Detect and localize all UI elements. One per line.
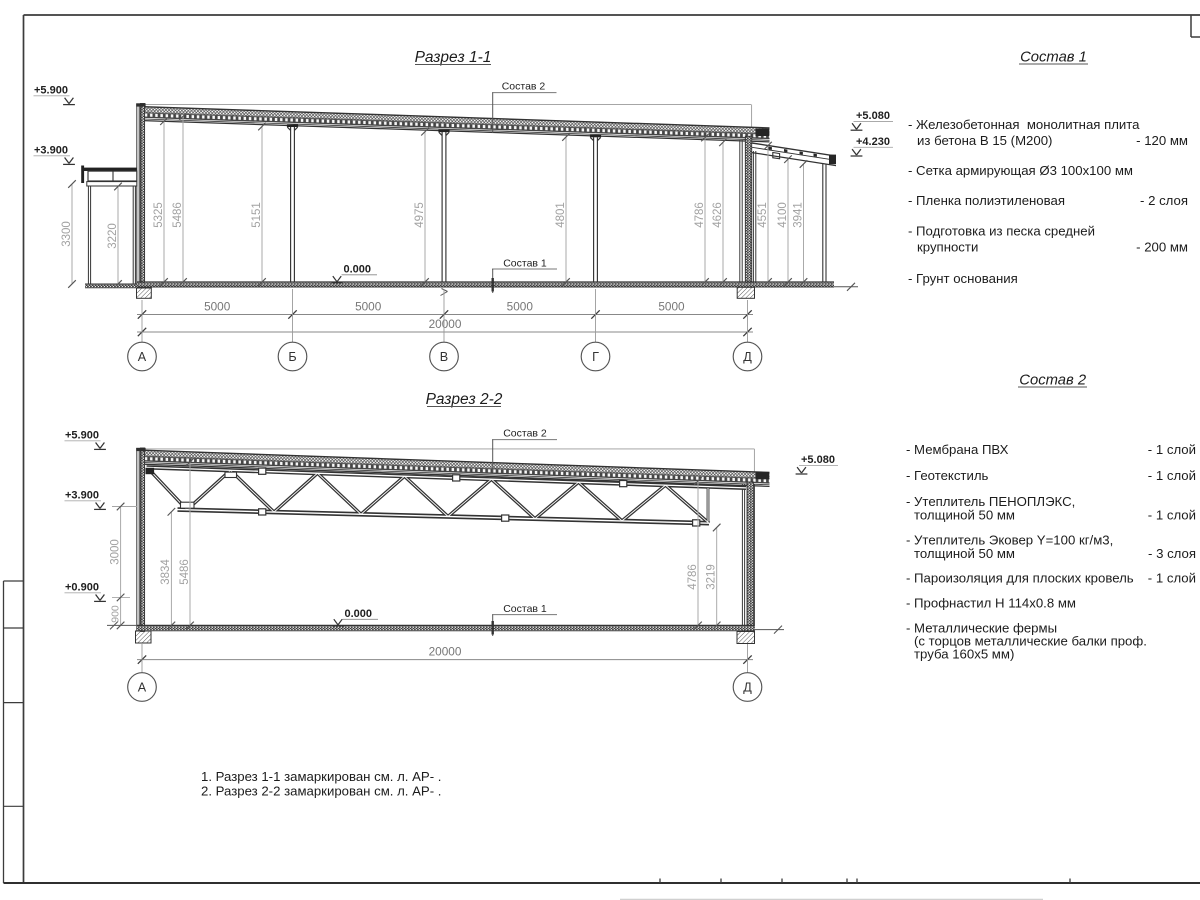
svg-text:Состав 2: Состав 2 [502,81,546,93]
svg-text:Д: Д [743,681,752,695]
svg-text:Состав 2: Состав 2 [1019,373,1087,389]
svg-text:Д: Д [743,350,752,364]
svg-text:Состав 1: Состав 1 [503,258,547,270]
svg-text:А: А [138,350,147,364]
svg-text:3220: 3220 [107,223,119,249]
svg-text:3219: 3219 [706,564,718,590]
svg-text:1. Разрез 1-1 замаркирован см.: 1. Разрез 1-1 замаркирован см. л. АР- . [201,769,441,784]
svg-text:Состав 1: Состав 1 [1020,50,1087,66]
svg-text:Г: Г [592,350,599,364]
svg-text:5000: 5000 [658,300,685,314]
svg-text:4975: 4975 [414,202,426,228]
svg-text:труба 160х5 мм): труба 160х5 мм) [914,647,1014,662]
svg-text:Состав 1: Состав 1 [503,603,547,615]
svg-text:3941: 3941 [792,202,804,228]
svg-text:- Профнастил Н 114х0.8 мм: - Профнастил Н 114х0.8 мм [906,596,1076,611]
svg-text:3300: 3300 [61,221,73,247]
svg-text:4100: 4100 [777,202,789,228]
svg-text:Разрез 1-1: Разрез 1-1 [415,49,492,66]
svg-text:- 2 слоя: - 2 слоя [1140,193,1188,208]
svg-text:- 1 слой: - 1 слой [1148,442,1196,457]
svg-text:3000: 3000 [109,539,121,565]
svg-text:- Сетка армирующая Ø3 100х100: - Сетка армирующая Ø3 100х100 мм [908,163,1133,178]
svg-text:+5.900: +5.900 [65,430,99,442]
svg-text:2. Разрез 2-2 замаркирован см.: 2. Разрез 2-2 замаркирован см. л. АР- . [201,784,441,799]
svg-text:+5.080: +5.080 [856,110,890,122]
svg-text:5151: 5151 [251,202,263,228]
svg-text:В: В [440,350,448,364]
svg-text:- Геотекстиль: - Геотекстиль [906,468,989,483]
svg-text:Б: Б [288,350,296,364]
svg-text:+4.230: +4.230 [856,136,890,148]
svg-text:5486: 5486 [179,559,191,585]
svg-text:крупности: крупности [917,240,978,255]
svg-text:4626: 4626 [712,202,724,228]
svg-text:+5.900: +5.900 [34,85,68,97]
svg-text:0.000: 0.000 [344,264,372,276]
svg-text:- 120 мм: - 120 мм [1136,133,1188,148]
svg-text:- 200 мм: - 200 мм [1136,240,1188,255]
svg-text:+3.900: +3.900 [65,490,99,502]
svg-text:20000: 20000 [429,317,462,331]
svg-text:- Подготовка из песка средней: - Подготовка из песка средней [908,224,1095,239]
svg-text:5486: 5486 [172,202,184,228]
svg-text:А: А [138,681,147,695]
svg-text:4801: 4801 [555,202,567,228]
svg-text:+3.900: +3.900 [34,145,68,157]
svg-text:из бетона В 15 (М200): из бетона В 15 (М200) [917,133,1052,148]
svg-text:- Пароизоляция для плоских кро: - Пароизоляция для плоских кровель [906,571,1134,586]
svg-text:- Пленка полиэтиленовая: - Пленка полиэтиленовая [908,193,1065,208]
svg-text:4786: 4786 [694,202,706,228]
svg-text:- Железобетонная монолитная п: - Железобетонная монолитная плита [908,117,1140,132]
svg-text:+5.080: +5.080 [801,454,835,466]
svg-text:- Мембрана ПВХ: - Мембрана ПВХ [906,442,1009,457]
svg-text:900: 900 [109,605,121,623]
svg-text:0.000: 0.000 [345,608,373,620]
svg-text:5000: 5000 [355,300,382,314]
svg-text:- 1 слой: - 1 слой [1148,508,1196,523]
svg-text:+0.900: +0.900 [65,582,99,594]
svg-text:3834: 3834 [160,559,172,585]
svg-text:Состав 2: Состав 2 [503,428,547,440]
svg-text:5325: 5325 [153,202,165,228]
svg-text:- 1 слой: - 1 слой [1148,571,1196,586]
svg-text:толщиной 50 мм: толщиной 50 мм [914,508,1015,523]
svg-text:- 3 слоя: - 3 слоя [1148,546,1196,561]
svg-text:толщиной 50 мм: толщиной 50 мм [914,546,1015,561]
svg-text:- Грунт основания: - Грунт основания [908,271,1018,286]
svg-text:20000: 20000 [429,645,462,659]
svg-text:- 1 слой: - 1 слой [1148,468,1196,483]
svg-text:5000: 5000 [507,300,534,314]
svg-text:5000: 5000 [204,300,231,314]
svg-text:Разрез 2-2: Разрез 2-2 [426,391,503,408]
svg-text:4551: 4551 [757,202,769,228]
svg-text:4786: 4786 [687,564,699,590]
